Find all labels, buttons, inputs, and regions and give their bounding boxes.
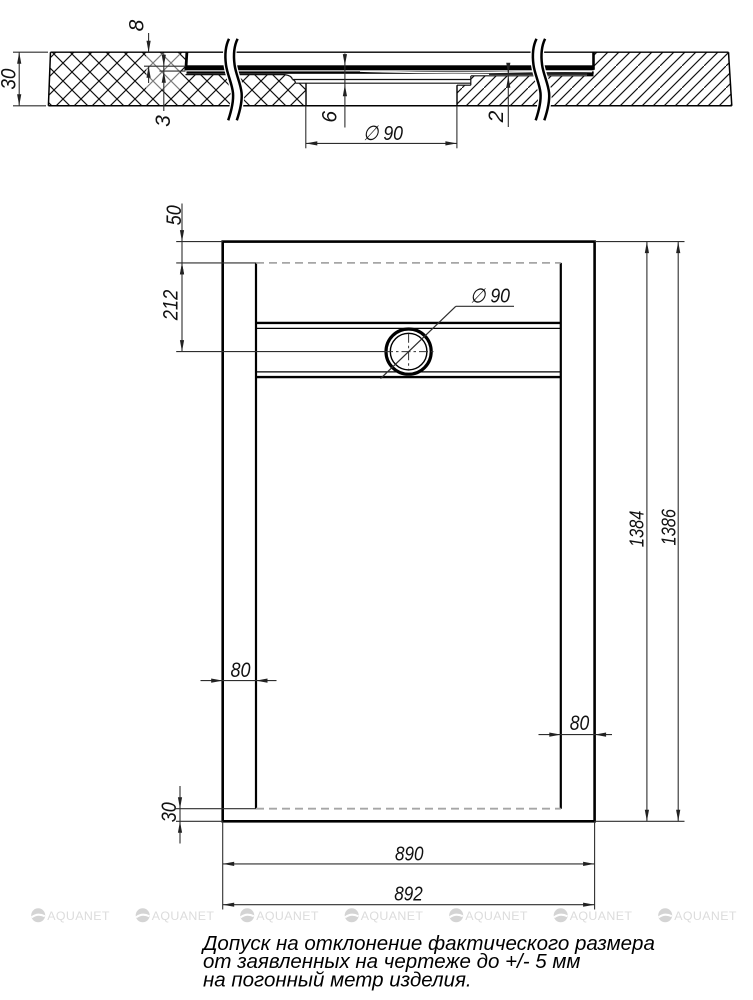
svg-text:2: 2 xyxy=(485,110,508,123)
svg-text:на погонный метр изделия.: на погонный метр изделия. xyxy=(203,968,472,991)
svg-text:AQUANET: AQUANET xyxy=(256,909,319,923)
svg-text:AQUANET: AQUANET xyxy=(674,909,737,923)
svg-text:3: 3 xyxy=(152,115,175,127)
svg-text:1384: 1384 xyxy=(627,511,649,548)
svg-text:∅ 90: ∅ 90 xyxy=(470,286,510,308)
svg-text:80: 80 xyxy=(231,659,251,682)
svg-text:AQUANET: AQUANET xyxy=(361,909,424,923)
svg-text:30: 30 xyxy=(158,802,181,822)
svg-text:8: 8 xyxy=(126,19,149,31)
svg-text:212: 212 xyxy=(160,289,183,321)
svg-text:890: 890 xyxy=(395,844,424,866)
svg-text:AQUANET: AQUANET xyxy=(465,909,528,923)
svg-text:50: 50 xyxy=(163,205,186,225)
svg-text:80: 80 xyxy=(570,712,590,735)
svg-text:AQUANET: AQUANET xyxy=(47,909,110,923)
svg-text:∅ 90: ∅ 90 xyxy=(363,122,404,145)
svg-text:30: 30 xyxy=(0,68,20,89)
svg-text:1386: 1386 xyxy=(658,508,680,545)
svg-text:892: 892 xyxy=(394,883,423,905)
svg-text:AQUANET: AQUANET xyxy=(152,909,215,923)
svg-text:6: 6 xyxy=(319,111,342,123)
svg-text:AQUANET: AQUANET xyxy=(570,909,633,923)
